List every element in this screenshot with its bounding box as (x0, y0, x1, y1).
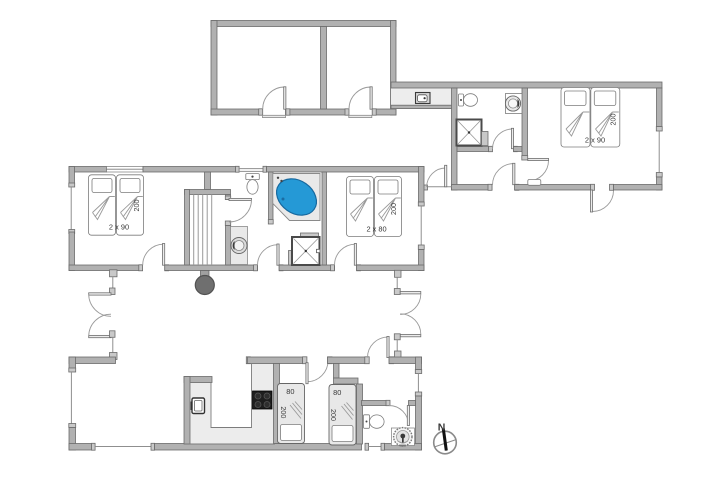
svg-text:200: 200 (329, 409, 338, 421)
svg-text:80: 80 (286, 387, 294, 396)
svg-text:200: 200 (279, 406, 288, 418)
svg-text:200: 200 (609, 114, 618, 126)
svg-text:2 x 90: 2 x 90 (585, 136, 605, 145)
svg-text:2 x 80: 2 x 80 (367, 224, 387, 233)
svg-text:200: 200 (389, 203, 398, 215)
svg-text:200: 200 (132, 200, 141, 212)
svg-text:2 x 90: 2 x 90 (109, 223, 129, 232)
svg-text:N: N (438, 422, 446, 434)
svg-text:80: 80 (333, 388, 341, 397)
